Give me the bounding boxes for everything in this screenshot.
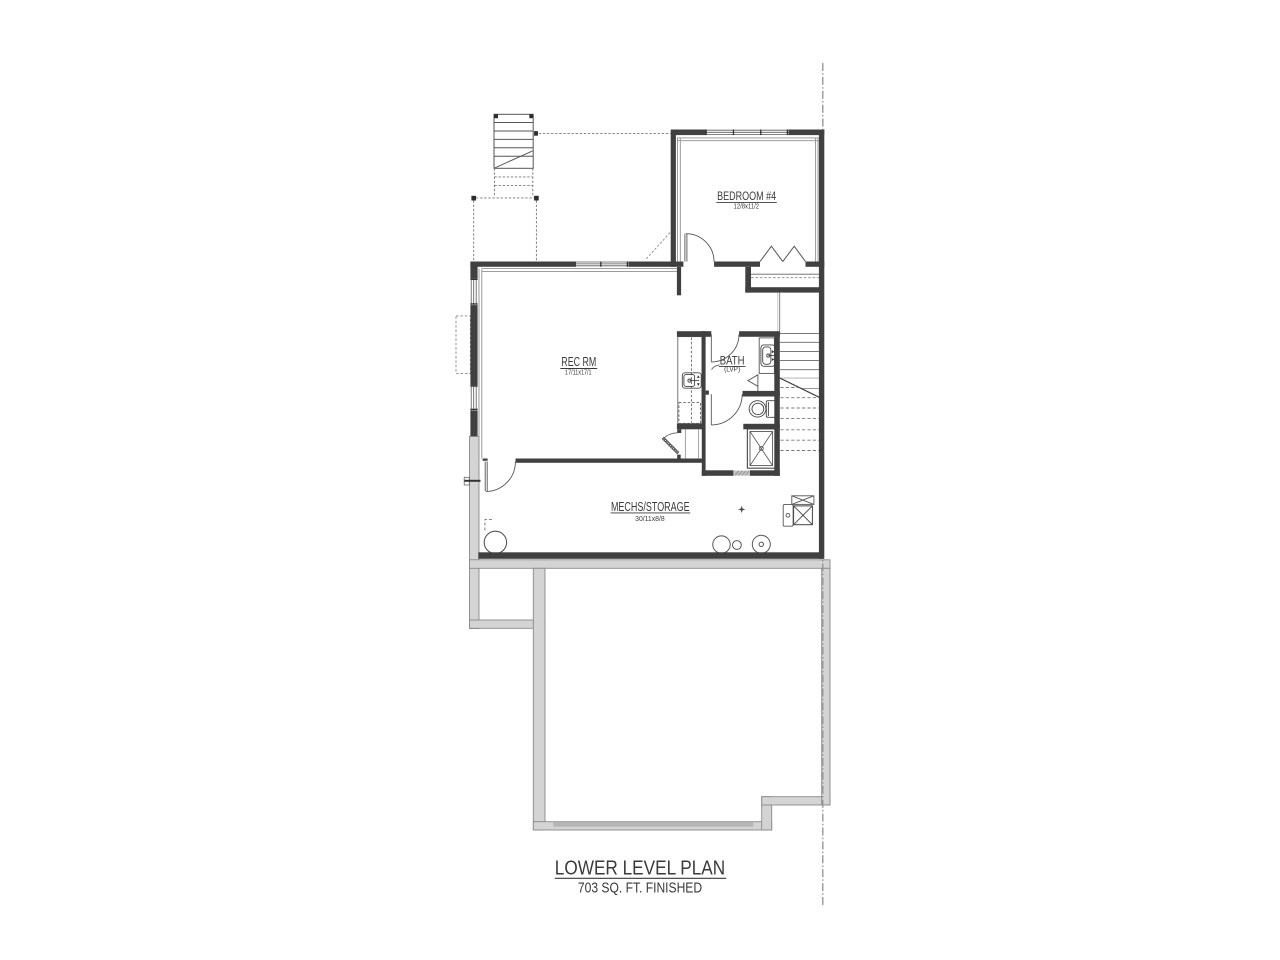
svg-text:30/11x8/8: 30/11x8/8 (635, 514, 665, 523)
svg-text:703 SQ. FT. FINISHED: 703 SQ. FT. FINISHED (578, 880, 702, 897)
svg-text:17/11x17/1: 17/11x17/1 (565, 368, 592, 377)
svg-text:MECHS/STORAGE: MECHS/STORAGE (611, 500, 690, 514)
svg-text:(LVP): (LVP) (724, 365, 740, 374)
svg-text:12/8x11/2: 12/8x11/2 (734, 201, 760, 210)
svg-text:LOWER LEVEL PLAN: LOWER LEVEL PLAN (555, 857, 725, 880)
